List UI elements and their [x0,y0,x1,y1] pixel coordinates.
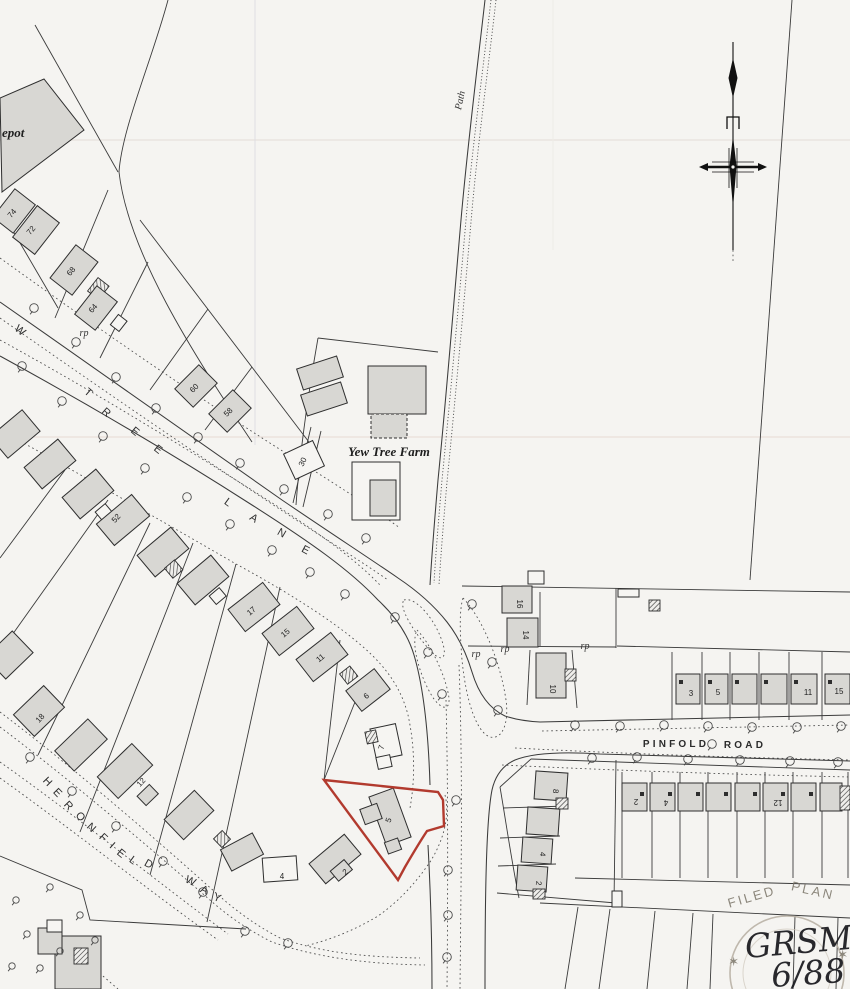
map-label: 14 [521,631,530,640]
map-label: epot [2,125,25,140]
map-label: 10 [548,685,557,694]
map-label: rp [581,641,590,652]
map-label: 3 [689,689,694,698]
map-label: 5 [716,688,721,697]
farm-barn [368,366,426,414]
map-label: 12 [773,798,782,807]
filed-plan-map: WTREELANEHERONFIELDWAYPINFOLDROADYew Tre… [0,0,850,989]
map-label: rp [80,328,89,339]
site-plan-svg: WTREELANEHERONFIELDWAYPINFOLDROADYew Tre… [0,0,850,989]
map-label: rp [501,644,510,655]
map-label: PINFOLD [643,739,709,750]
map-label: ROAD [724,740,766,751]
map-label: 6/88 [770,951,847,989]
map-label: ✶ [728,954,741,969]
map-label: Yew Tree Farm [348,444,430,459]
map-label: 11 [804,688,813,697]
map-label: 4 [663,798,668,807]
map-label: 2 [633,797,638,806]
map-label: 15 [835,687,844,696]
map-label: 16 [515,600,524,609]
map-label: 4 [280,872,285,881]
map-label: rp [472,649,481,660]
paper-background [0,0,850,989]
